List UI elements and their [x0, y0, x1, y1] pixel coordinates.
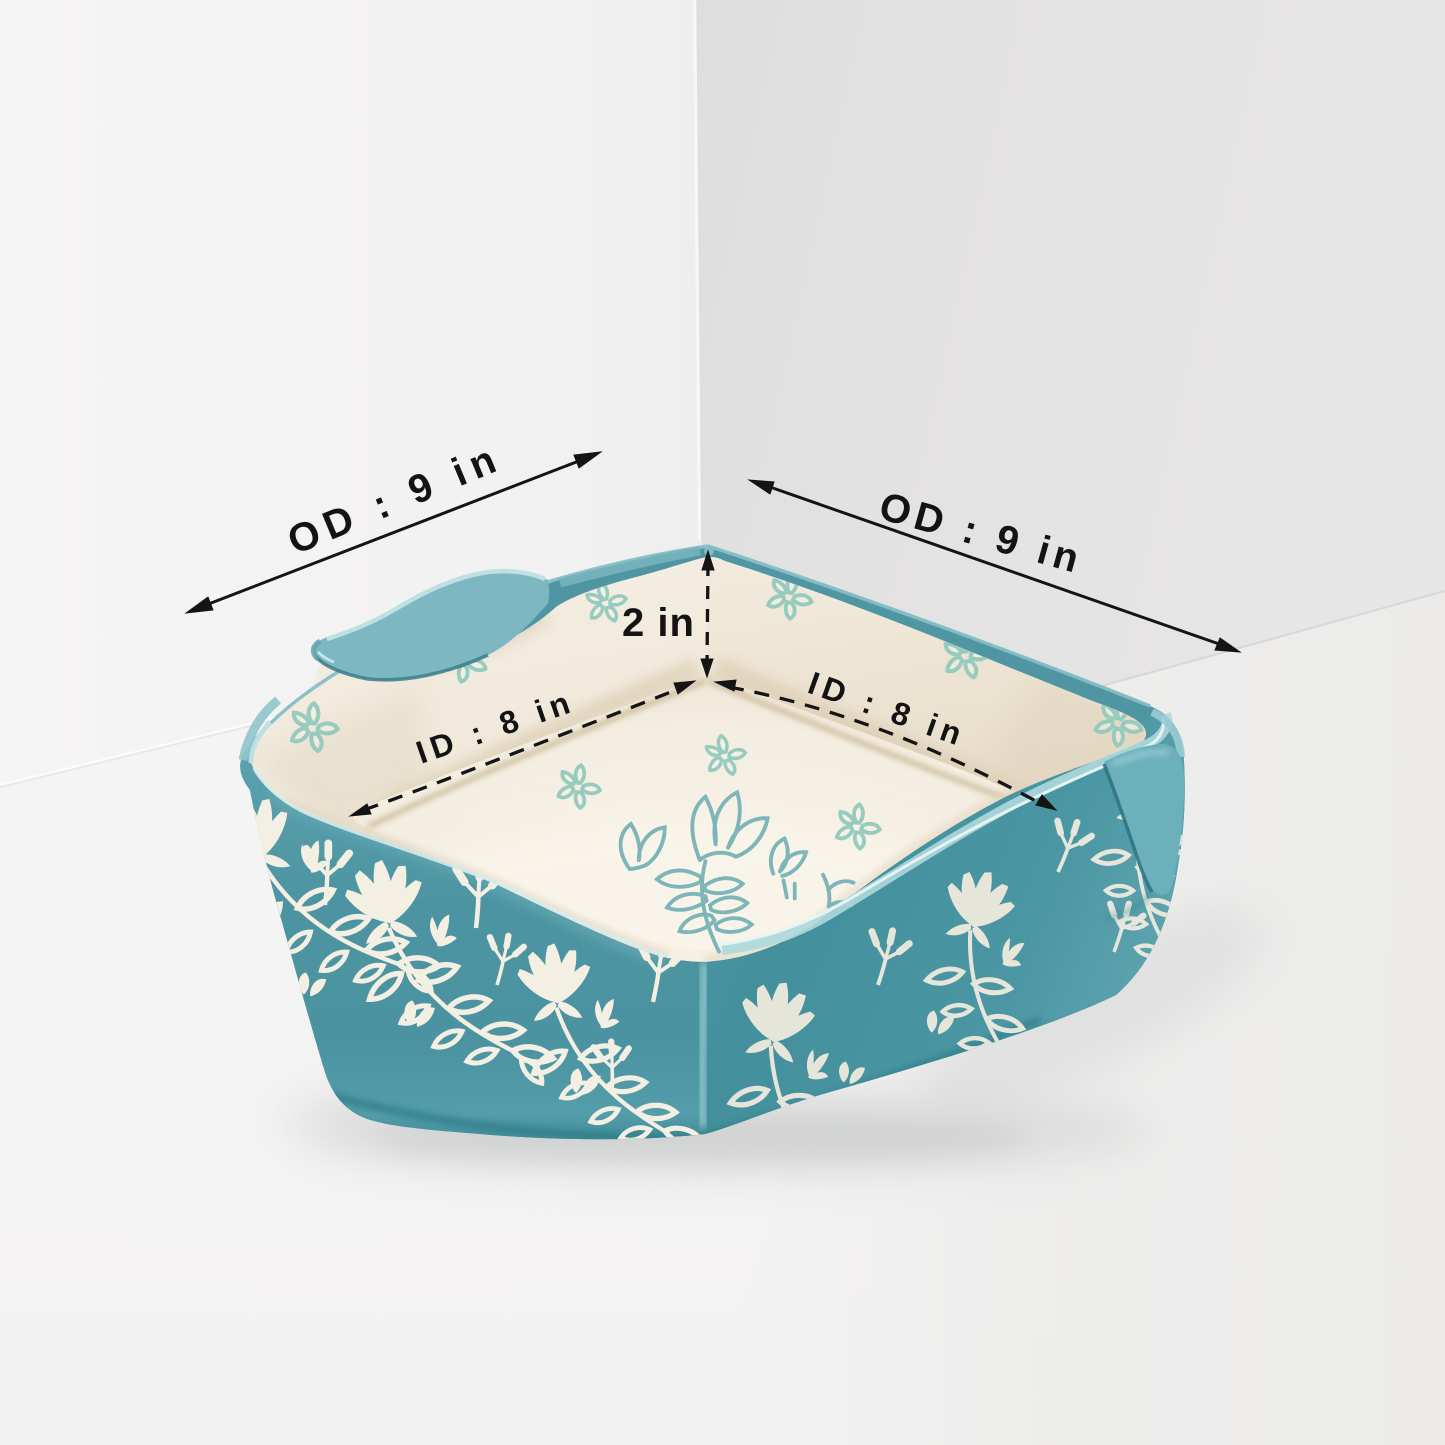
svg-text:2 in: 2 in — [622, 601, 695, 645]
